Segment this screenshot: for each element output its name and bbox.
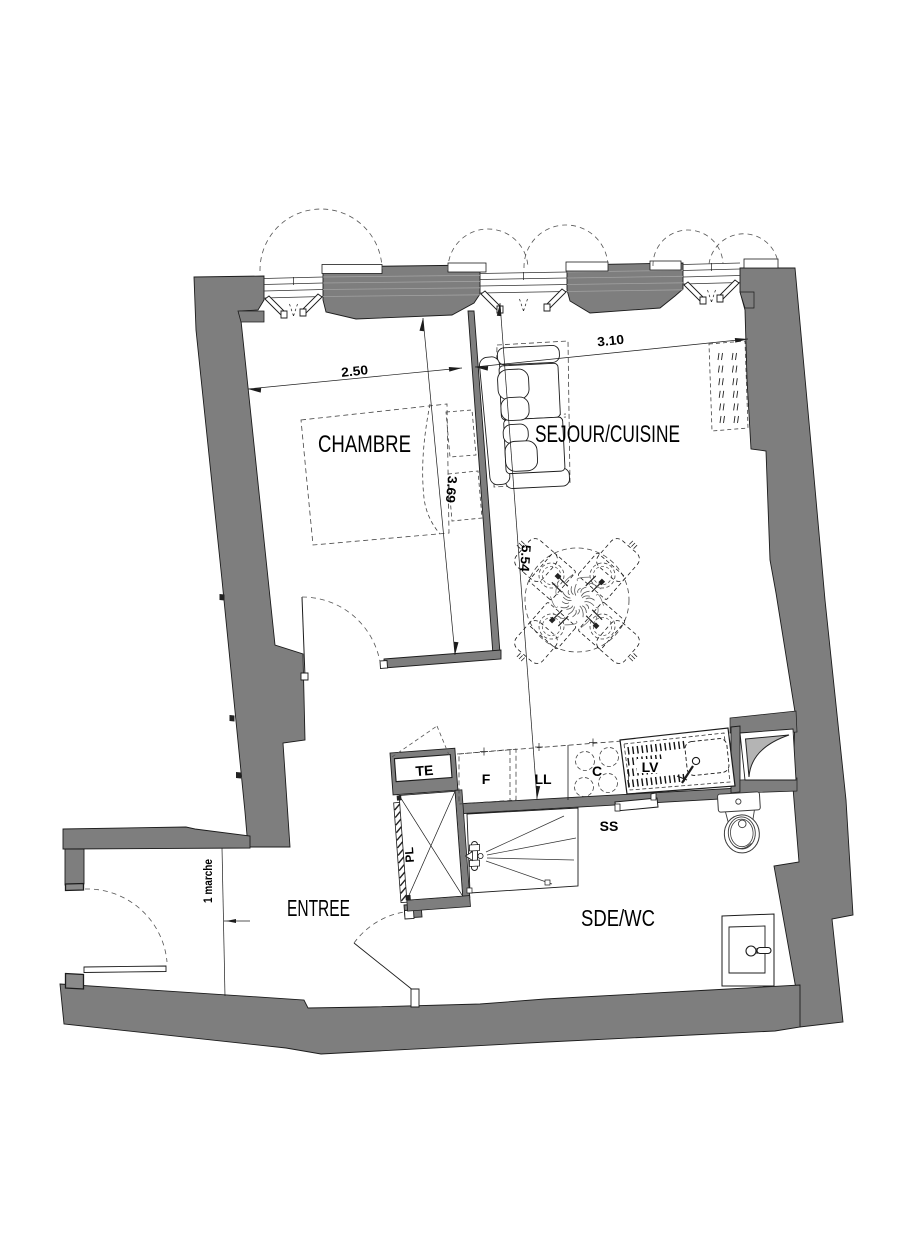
- svg-text:LL: LL: [534, 771, 552, 787]
- svg-text:SDE/WC: SDE/WC: [581, 905, 655, 931]
- svg-text:LV: LV: [642, 759, 660, 775]
- svg-text:ENTREE: ENTREE: [287, 895, 350, 921]
- svg-text:TE: TE: [415, 762, 434, 779]
- svg-text:CHAMBRE: CHAMBRE: [318, 431, 411, 458]
- svg-text:3.10: 3.10: [596, 332, 624, 350]
- svg-text:1 marche: 1 marche: [203, 859, 215, 903]
- svg-text:SEJOUR/CUISINE: SEJOUR/CUISINE: [535, 421, 680, 448]
- svg-text:5.54: 5.54: [517, 544, 534, 573]
- svg-text:C: C: [592, 763, 602, 779]
- svg-text:2.50: 2.50: [340, 362, 368, 380]
- svg-text:PL: PL: [402, 847, 417, 863]
- svg-text:3.69: 3.69: [443, 475, 460, 503]
- svg-text:F: F: [482, 771, 491, 787]
- svg-text:SS: SS: [600, 818, 619, 834]
